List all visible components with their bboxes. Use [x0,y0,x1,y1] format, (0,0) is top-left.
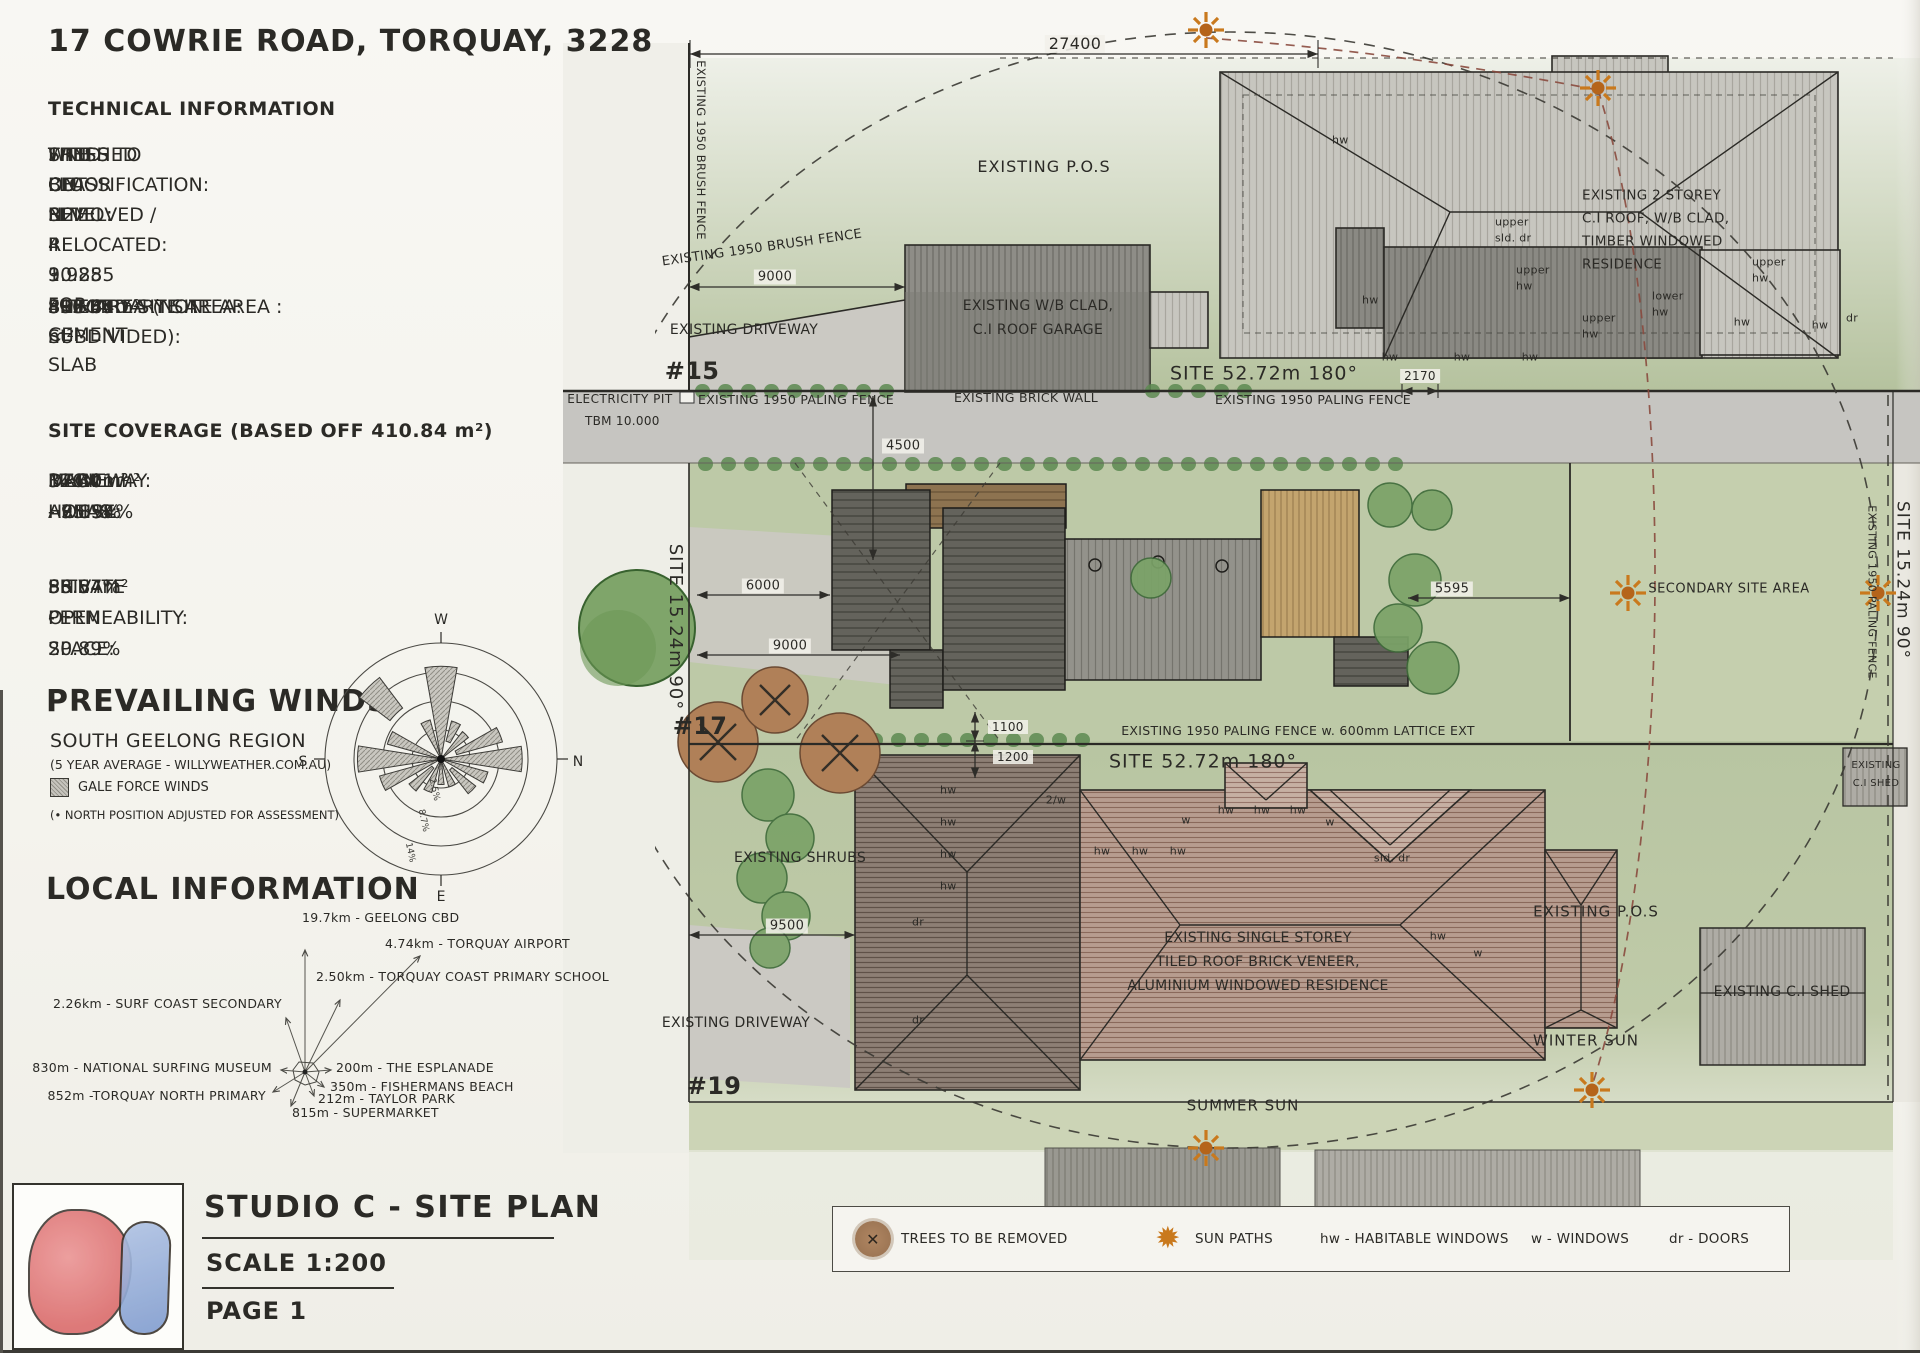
legend-item-label: TREES TO BE REMOVED [901,1231,1068,1247]
legend-item: ✹SUN PATHS [1151,1207,1273,1271]
legend-item: ✕TREES TO BE REMOVED [855,1207,1068,1271]
gale-force-label: GALE FORCE WINDS [78,780,209,795]
title-rule [202,1237,554,1239]
technical-heading: TECHNICAL INFORMATION [48,98,336,120]
plan-legend: ✕TREES TO BE REMOVED✹SUN PATHShw - HABIT… [832,1206,1790,1272]
scale-label: SCALE 1:200 [206,1249,387,1277]
removed-tree-icon: ✕ [855,1221,891,1257]
gale-force-swatch [50,778,69,797]
compass-label-w: W [434,612,448,628]
page-label: PAGE 1 [206,1297,307,1325]
ring-percentage-label: 14% [403,842,417,864]
legend-item-label: w - WINDOWS [1531,1231,1629,1247]
existing-two-storey-residence [1220,56,1840,358]
ring-percentage-label: 8.7% [416,808,431,833]
local-information-arrows [273,950,420,1106]
logo-red-shape [28,1209,132,1335]
logo-blue-shape [118,1220,172,1336]
sun-icon: ✹ [1151,1224,1185,1254]
scale-rule [202,1287,394,1289]
wind-rose-petal [357,746,441,772]
sheet-edge-left [0,690,3,1353]
legend-item-label: hw - HABITABLE WINDOWS [1320,1231,1509,1247]
wind-rose-center [437,755,445,763]
existing-single-storey-residence [855,755,1617,1090]
project-title: STUDIO C - SITE PLAN [204,1190,601,1225]
wind-rose-chart: WNES2.5%8.7%14% [292,600,592,912]
rear-neighbour-buildings [1045,1148,1640,1207]
compass-label-e: E [437,889,446,905]
winds-source: (5 YEAR AVERAGE - WILLYWEATHER.COM.AU) [50,757,331,772]
technical-info-line: TREES TO BE REMOVED / RELOCATED: 3 [48,140,168,290]
winds-region: SOUTH GEELONG REGION [50,730,306,752]
existing-tree [579,570,695,686]
legend-item-label: dr - DOORS [1669,1231,1749,1247]
legend-item-label: SUN PATHS [1195,1231,1273,1247]
compass-label-n: N [573,754,583,770]
studio-logo [12,1183,184,1350]
address-title: 17 COWRIE ROAD, TORQUAY, 3228 [48,24,653,59]
site-plan-sheet: 27400EXISTING P.O.SEXISTING 1950 BRUSH F… [0,0,1920,1353]
gale-force-legend: GALE FORCE WINDS [50,778,209,797]
legend-item: w - WINDOWS [1531,1207,1629,1271]
legend-item: dr - DOORS [1669,1207,1749,1271]
electricity-pit-icon [680,392,694,403]
compass-label-s: S [299,754,308,770]
wind-rose-petals [357,666,522,794]
legend-item: hw - HABITABLE WINDOWS [1320,1207,1509,1271]
site-plan-drawing [0,0,1920,1353]
site-coverage-heading: SITE COVERAGE (BASED OFF 410.84 m²) [48,420,493,442]
